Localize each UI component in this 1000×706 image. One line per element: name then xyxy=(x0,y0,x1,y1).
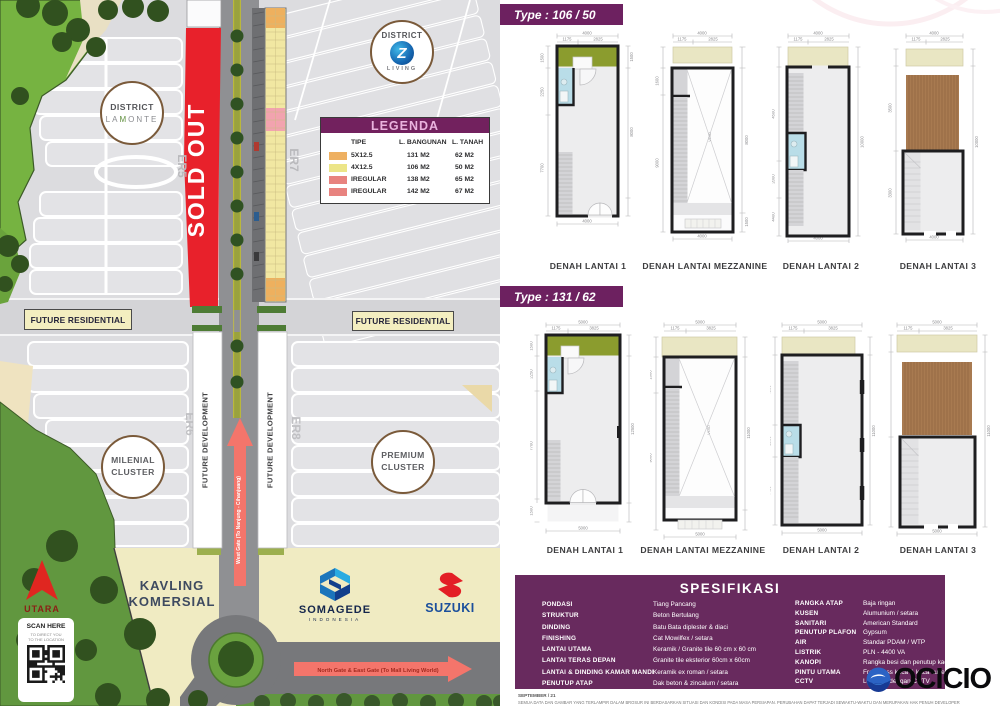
svg-text:FUTURE DEVELOPMENT: FUTURE DEVELOPMENT xyxy=(266,392,275,488)
svg-text:8000: 8000 xyxy=(744,135,749,145)
svg-text:4000: 4000 xyxy=(697,31,707,36)
svg-text:1500: 1500 xyxy=(540,53,545,63)
svg-text:1500: 1500 xyxy=(744,217,749,227)
svg-text:1500: 1500 xyxy=(530,341,534,351)
svg-text:4000: 4000 xyxy=(582,31,592,36)
svg-text:4400: 4400 xyxy=(770,486,772,496)
svg-text:2000: 2000 xyxy=(772,174,776,184)
svg-text:1175: 1175 xyxy=(551,326,561,331)
svg-text:3825: 3825 xyxy=(589,326,599,331)
svg-text:5000: 5000 xyxy=(695,320,705,325)
svg-text:7700: 7700 xyxy=(540,163,545,173)
svg-text:KOMERSIAL: KOMERSIAL xyxy=(129,594,216,609)
svg-text:7700: 7700 xyxy=(530,441,534,451)
svg-text:ER7: ER7 xyxy=(287,148,301,172)
svg-text:VOID: VOID xyxy=(706,425,711,435)
svg-text:3825: 3825 xyxy=(943,326,953,331)
svg-text:4500: 4500 xyxy=(772,109,776,119)
svg-text:5000: 5000 xyxy=(578,320,588,325)
svg-text:11000: 11000 xyxy=(986,425,991,437)
svg-text:12500: 12500 xyxy=(630,423,635,435)
svg-text:5000: 5000 xyxy=(695,532,705,537)
svg-text:3825: 3825 xyxy=(706,326,716,331)
svg-text:1175: 1175 xyxy=(788,326,798,331)
svg-text:1175: 1175 xyxy=(911,37,921,42)
svg-text:1500: 1500 xyxy=(530,506,534,516)
svg-text:3300: 3300 xyxy=(888,188,893,198)
svg-text:West Gate (To Nanjung - Cihanj: West Gate (To Nanjung - Cihanjuang) xyxy=(236,476,242,564)
svg-text:UTARA: UTARA xyxy=(24,604,60,614)
svg-text:2825: 2825 xyxy=(940,37,950,42)
svg-text:2250: 2250 xyxy=(530,369,534,379)
svg-text:3825: 3825 xyxy=(828,326,838,331)
svg-text:North Gate & East Gate (To Mal: North Gate & East Gate (To Mall Living W… xyxy=(317,668,438,674)
svg-text:5000: 5000 xyxy=(817,320,827,325)
svg-text:FUTURE DEVELOPMENT: FUTURE DEVELOPMENT xyxy=(201,392,210,488)
svg-text:5000: 5000 xyxy=(578,526,588,531)
svg-text:VOID: VOID xyxy=(707,132,712,142)
svg-text:1500: 1500 xyxy=(629,52,634,62)
svg-text:11000: 11000 xyxy=(746,427,751,439)
svg-text:1600: 1600 xyxy=(655,76,660,86)
svg-text:2825: 2825 xyxy=(708,37,718,42)
svg-text:1600: 1600 xyxy=(650,370,653,380)
svg-text:1175: 1175 xyxy=(903,326,913,331)
svg-text:1175: 1175 xyxy=(562,37,572,42)
svg-text:4000: 4000 xyxy=(697,234,707,239)
svg-text:4000: 4000 xyxy=(813,31,823,36)
svg-text:4400: 4400 xyxy=(772,212,776,222)
svg-text:5000: 5000 xyxy=(932,320,942,325)
svg-text:2000: 2000 xyxy=(770,436,772,446)
svg-text:2825: 2825 xyxy=(824,37,834,42)
svg-text:10000: 10000 xyxy=(974,136,979,148)
svg-text:2250: 2250 xyxy=(540,87,545,97)
svg-text:5000: 5000 xyxy=(932,529,942,534)
svg-text:ER5: ER5 xyxy=(175,154,189,178)
svg-text:3500: 3500 xyxy=(888,103,893,113)
svg-text:11000: 11000 xyxy=(871,425,876,437)
svg-text:1175: 1175 xyxy=(670,326,680,331)
svg-text:5000: 5000 xyxy=(817,528,827,533)
svg-text:1175: 1175 xyxy=(677,37,687,42)
svg-text:1175: 1175 xyxy=(793,37,803,42)
svg-text:KAVLING: KAVLING xyxy=(140,578,205,593)
svg-text:10000: 10000 xyxy=(860,136,865,148)
svg-text:4500: 4500 xyxy=(770,385,772,395)
svg-text:ER8: ER8 xyxy=(289,416,303,440)
svg-text:4000: 4000 xyxy=(582,219,592,224)
svg-text:2825: 2825 xyxy=(593,37,603,42)
svg-text:8000: 8000 xyxy=(629,127,634,137)
svg-text:9000: 9000 xyxy=(655,158,660,168)
svg-text:9000: 9000 xyxy=(650,453,653,463)
svg-text:4000: 4000 xyxy=(929,31,939,36)
